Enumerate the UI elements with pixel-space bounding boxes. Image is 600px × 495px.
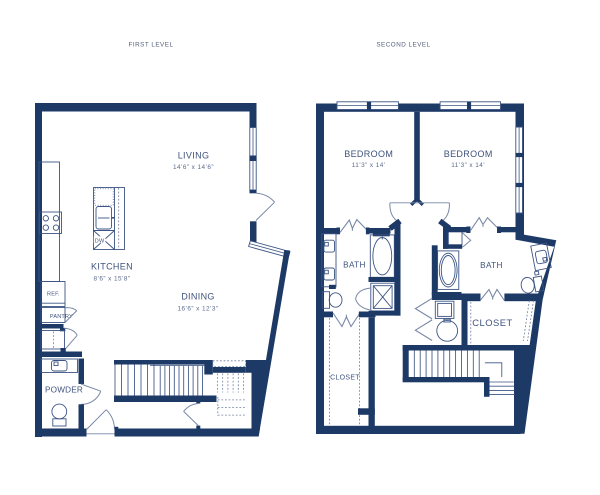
svg-text:14’6” x 14’6”: 14’6” x 14’6” [173,164,214,171]
svg-text:DINING: DINING [181,292,215,302]
svg-text:LIVING: LIVING [178,151,210,161]
svg-text:11’3” x 14’: 11’3” x 14’ [352,162,386,169]
svg-text:BEDROOM: BEDROOM [344,149,393,159]
svg-text:BATH: BATH [343,261,366,270]
svg-text:16’6” x 12’3”: 16’6” x 12’3” [177,306,218,313]
svg-text:CLOSET: CLOSET [472,317,513,328]
svg-text:DW: DW [95,238,105,244]
svg-text:8’6” x 15’8”: 8’6” x 15’8” [93,275,130,282]
svg-text:REF.: REF. [47,292,60,298]
svg-text:11’3” x 14’: 11’3” x 14’ [451,162,485,169]
svg-text:BATH: BATH [480,261,503,270]
svg-text:KITCHEN: KITCHEN [91,262,133,272]
svg-text:BEDROOM: BEDROOM [444,149,493,159]
svg-text:SECOND LEVEL: SECOND LEVEL [376,41,430,48]
svg-text:PANTRY: PANTRY [50,314,73,320]
svg-text:POWDER: POWDER [45,386,83,395]
svg-text:CLOSET: CLOSET [330,374,360,381]
svg-text:FIRST LEVEL: FIRST LEVEL [129,41,174,48]
